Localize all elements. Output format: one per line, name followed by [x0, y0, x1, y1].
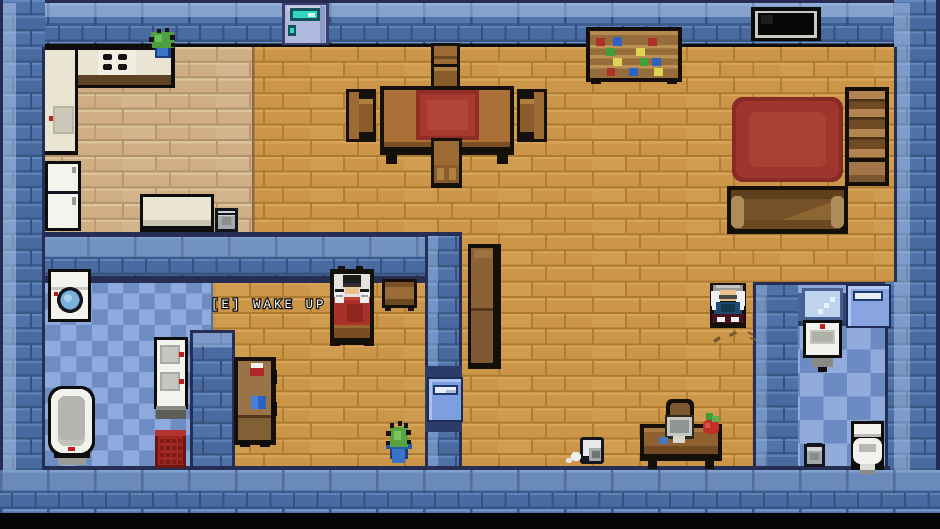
svg-text:[E] WAKE UP: [E] WAKE UP — [211, 298, 327, 312]
